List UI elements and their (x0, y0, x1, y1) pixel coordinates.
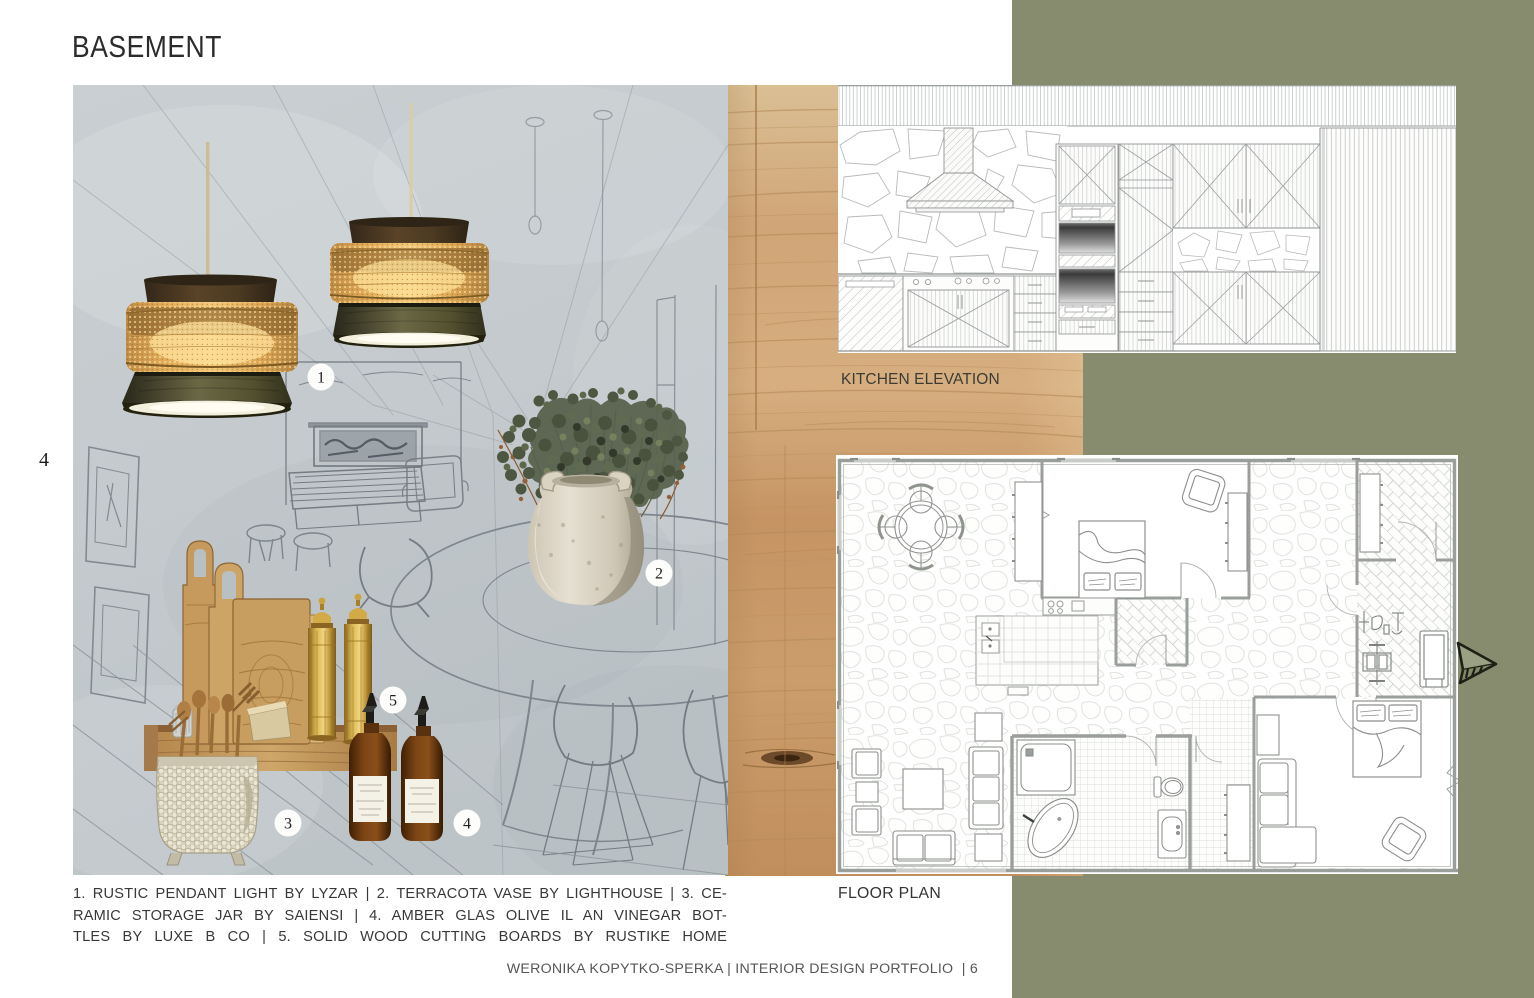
svg-text:2: 2 (655, 566, 663, 583)
svg-text:3: 3 (284, 816, 292, 833)
svg-text:1: 1 (317, 370, 325, 387)
svg-text:5: 5 (389, 693, 397, 710)
svg-text:4: 4 (463, 816, 471, 833)
